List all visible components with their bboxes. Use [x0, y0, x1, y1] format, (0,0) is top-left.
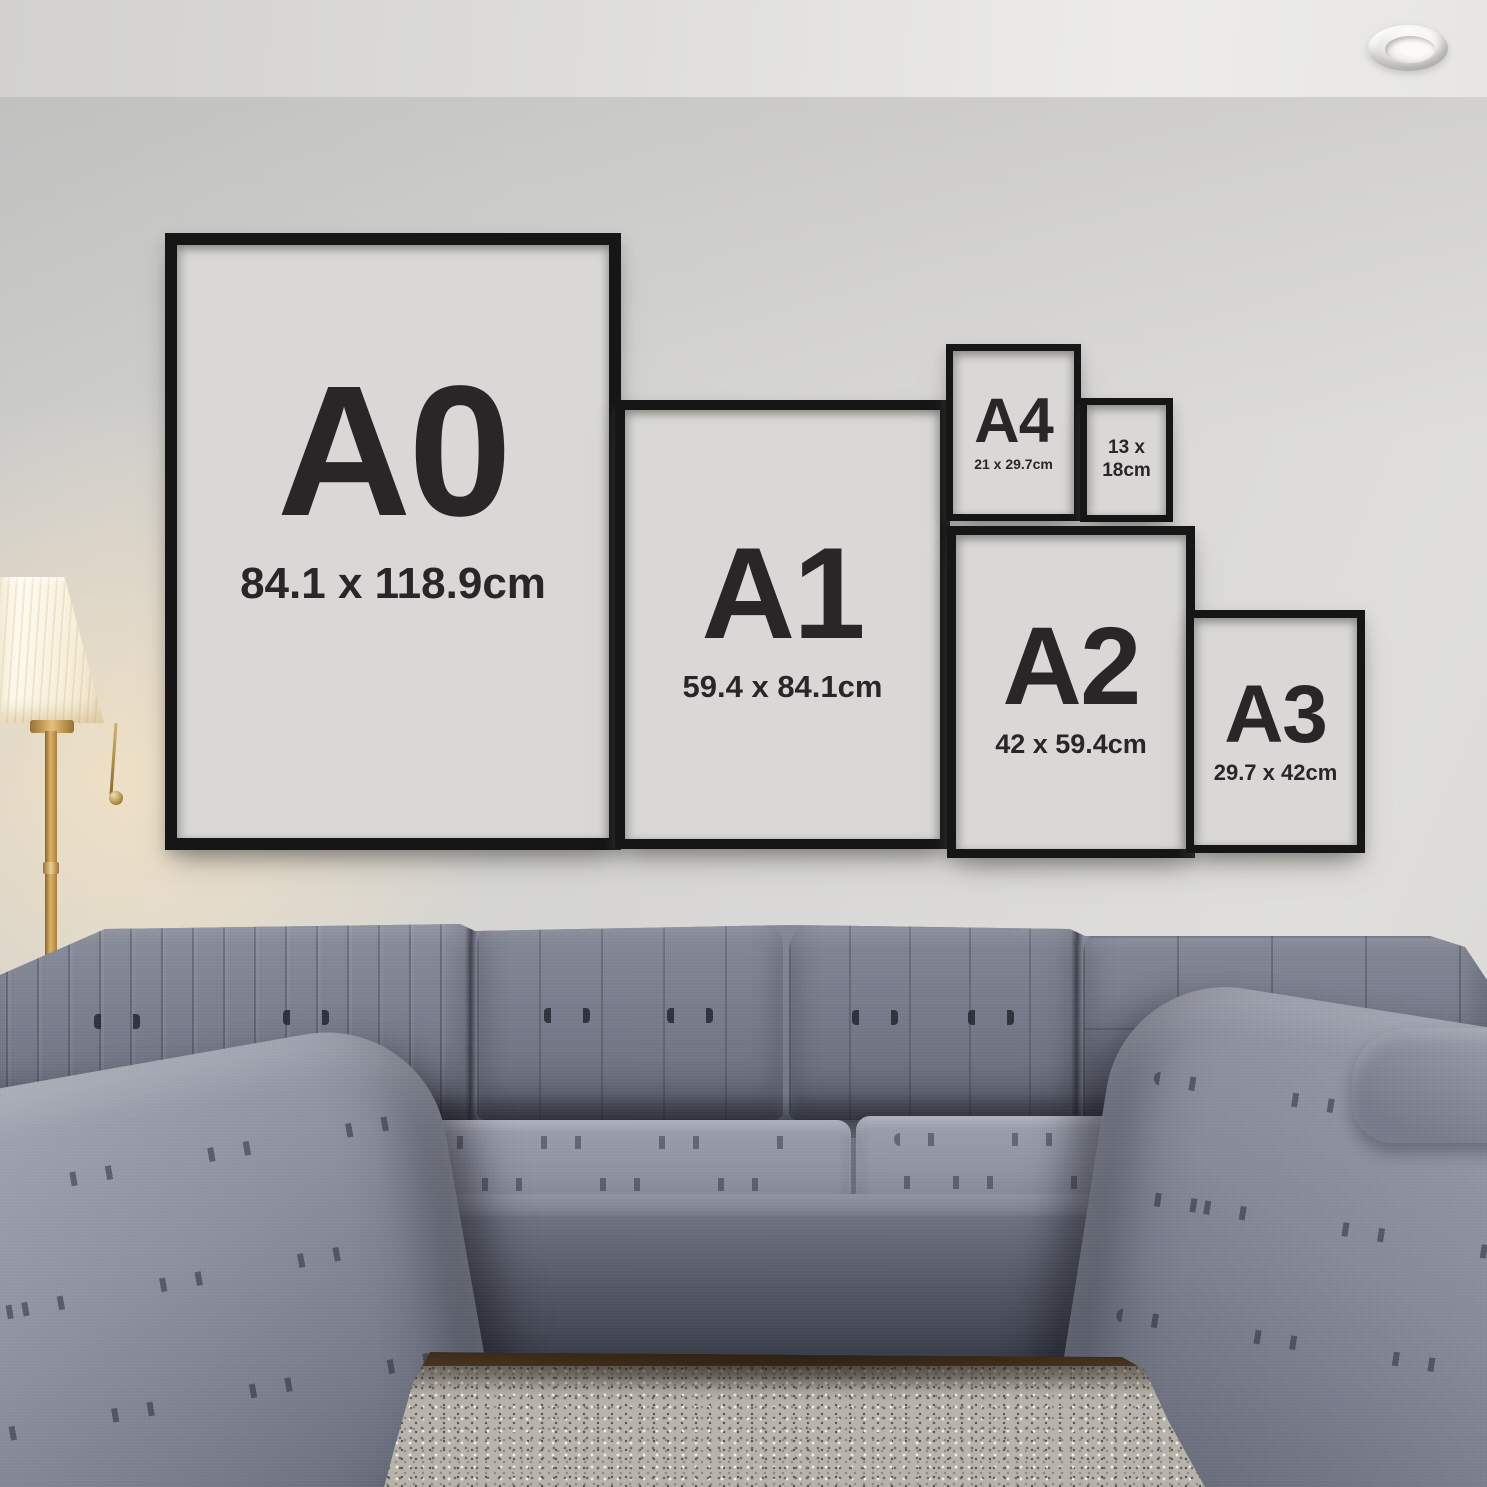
tuft-buttons [667, 1008, 713, 1023]
size-dimensions-a1: 59.4 x 84.1cm [683, 669, 883, 705]
frame-mat: A0 84.1 x 118.9cm [177, 245, 609, 838]
frame-mat: 13 x 18cm [1087, 405, 1166, 515]
size-dimensions-a4: 21 x 29.7cm [974, 456, 1053, 472]
frame-mat: A4 21 x 29.7cm [953, 351, 1074, 514]
frame-a2: A2 42 x 59.4cm [947, 526, 1195, 858]
size-label-a2: A2 [1002, 616, 1139, 717]
lamp-collar [43, 862, 59, 874]
frame-a1: A1 59.4 x 84.1cm [615, 400, 950, 849]
tuft-buttons [968, 1010, 1014, 1025]
recessed-light-inner [1385, 36, 1435, 63]
size-dimensions-a3: 29.7 x 42cm [1214, 760, 1338, 786]
size-label-a3: A3 [1224, 677, 1326, 752]
chaise-tuft-row [1115, 1308, 1487, 1395]
right-arm-cushion [1352, 1028, 1487, 1143]
frame-mat: A1 59.4 x 84.1cm [625, 410, 940, 839]
frame-a4: A4 21 x 29.7cm [946, 344, 1081, 521]
chaise-tuft-row [1134, 1189, 1487, 1276]
chaise-tuft-row [0, 1115, 399, 1211]
chaise-tuft-row [0, 1233, 420, 1329]
size-label-a1: A1 [701, 534, 863, 654]
frame-13x18: 13 x 18cm [1080, 398, 1173, 522]
ceiling [0, 0, 1487, 99]
size-label-a4: A4 [974, 393, 1053, 451]
chaise-tuft-row [0, 1351, 440, 1447]
backrest-cushion-mid-left [477, 920, 783, 1120]
size-dimensions-a2: 42 x 59.4cm [995, 729, 1147, 760]
lamp-pull-chain-ball [109, 791, 123, 805]
tuft-buttons [283, 1010, 329, 1025]
frame-a0: A0 84.1 x 118.9cm [165, 233, 621, 850]
backrest-cushion-mid-right [789, 924, 1077, 1120]
size-dimensions-13x18: 13 x 18cm [1102, 437, 1151, 483]
tuft-buttons [544, 1008, 590, 1023]
tuft-buttons [94, 1014, 140, 1029]
frame-mat: A3 29.7 x 42cm [1194, 618, 1357, 845]
tuft-buttons [852, 1010, 898, 1025]
frame-mat: A2 42 x 59.4cm [956, 535, 1186, 849]
size-dimensions-a0: 84.1 x 118.9cm [240, 559, 546, 609]
size-dimensions-13x18-line2: 18cm [1102, 460, 1151, 483]
frame-a3: A3 29.7 x 42cm [1186, 610, 1365, 853]
sofa-base-panel [415, 1216, 1145, 1360]
backrest-seam [465, 920, 477, 1120]
living-room-poster-size-mockup: A0 84.1 x 118.9cm A1 59.4 x 84.1cm A4 21… [0, 0, 1487, 1487]
size-label-a0: A0 [277, 366, 509, 537]
size-dimensions-13x18-line1: 13 x [1102, 437, 1151, 460]
backrest-seam [1071, 920, 1083, 1120]
